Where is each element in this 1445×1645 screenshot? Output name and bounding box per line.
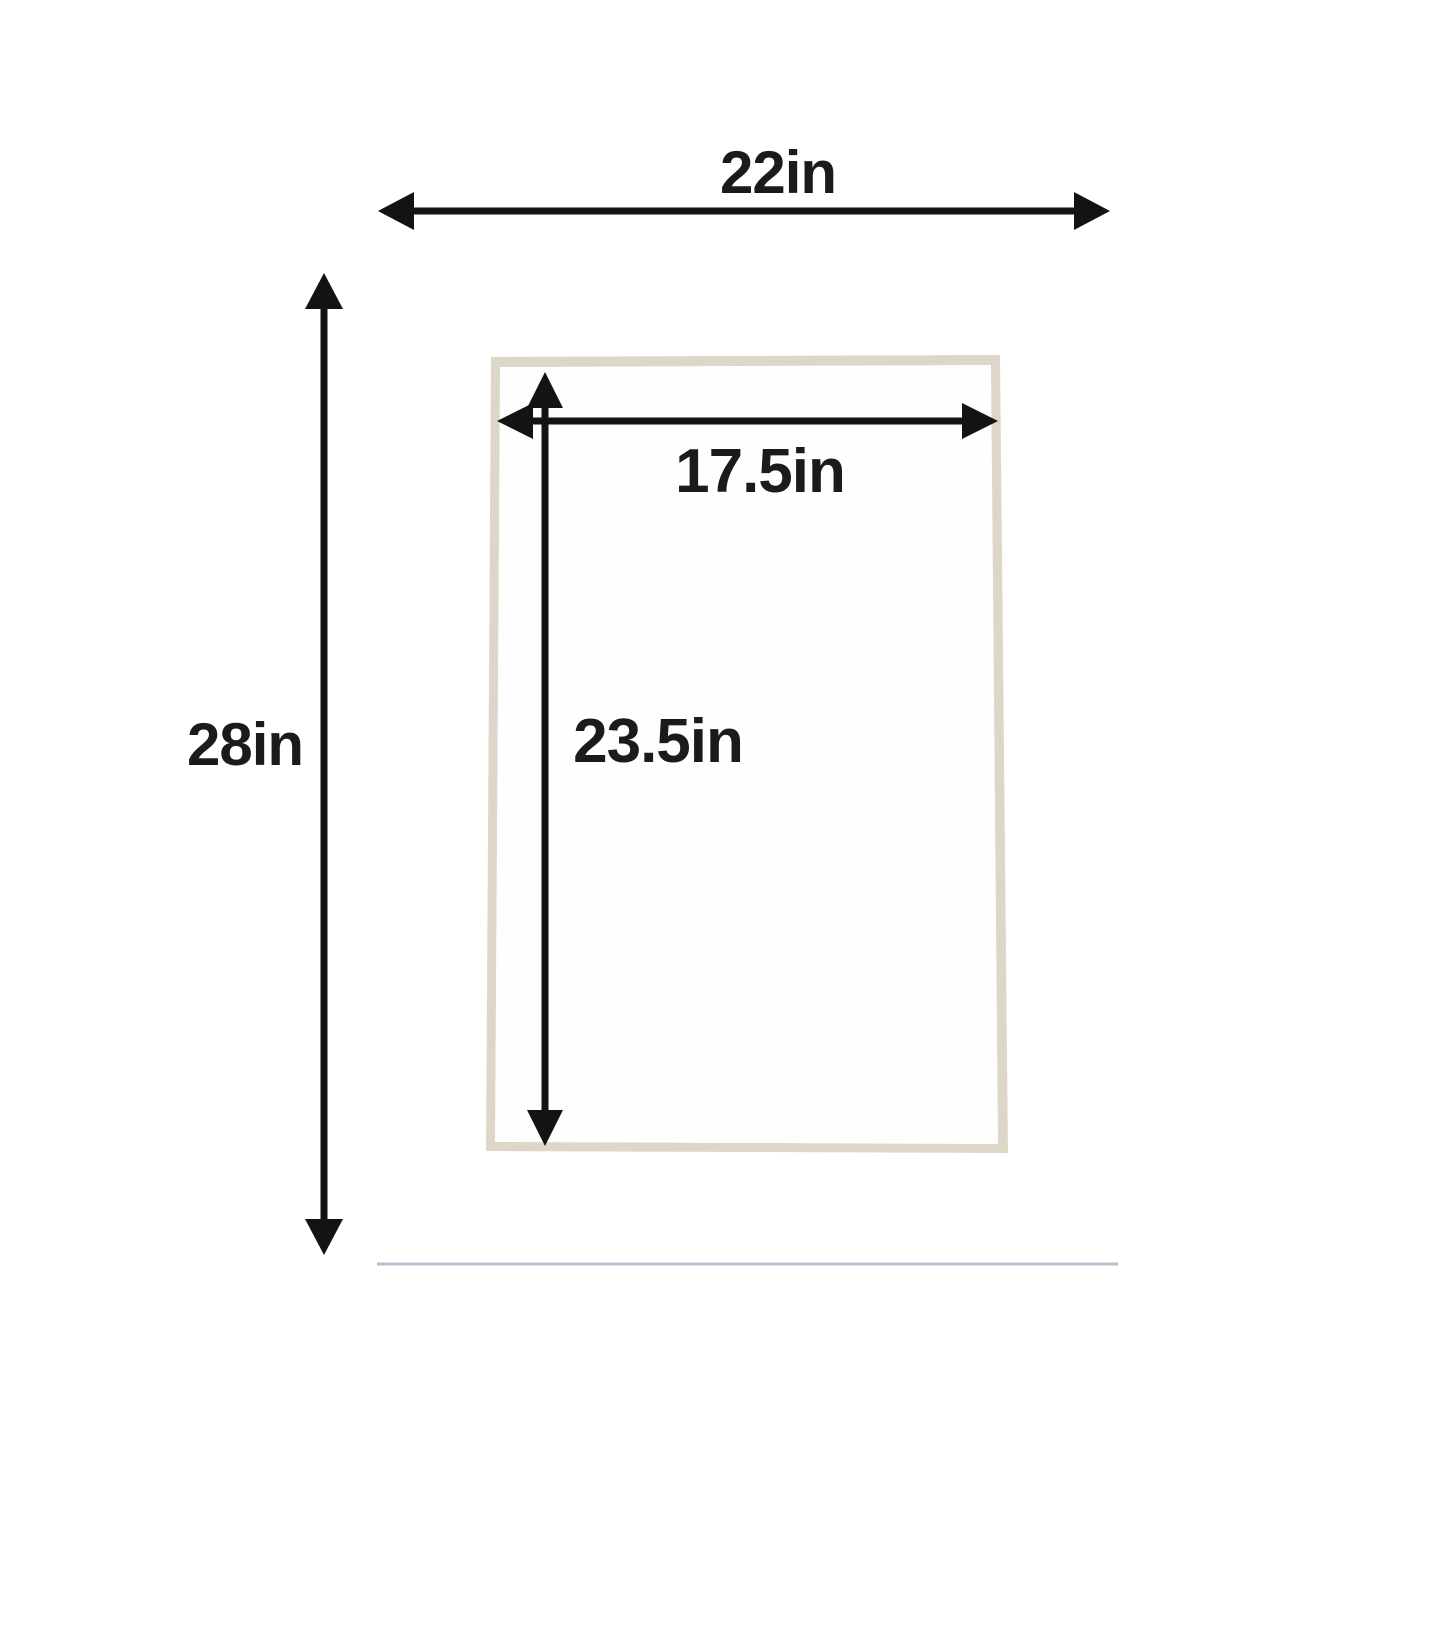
mat-dimension-diagram: 22in 28in 17.5in 23.5in <box>0 0 1445 1645</box>
outer-width-label: 22in <box>720 143 836 203</box>
arrowhead-up-icon <box>305 273 343 309</box>
opening-width-label: 17.5in <box>675 441 845 503</box>
outer-height-label: 28in <box>187 715 303 775</box>
outer-height-arrow <box>305 273 343 1255</box>
arrowhead-left-icon <box>378 192 414 230</box>
arrowhead-down-icon <box>305 1219 343 1255</box>
opening-height-label: 23.5in <box>573 711 743 773</box>
arrowhead-right-icon <box>1074 192 1110 230</box>
mat-diagram-canvas <box>0 0 1445 1645</box>
